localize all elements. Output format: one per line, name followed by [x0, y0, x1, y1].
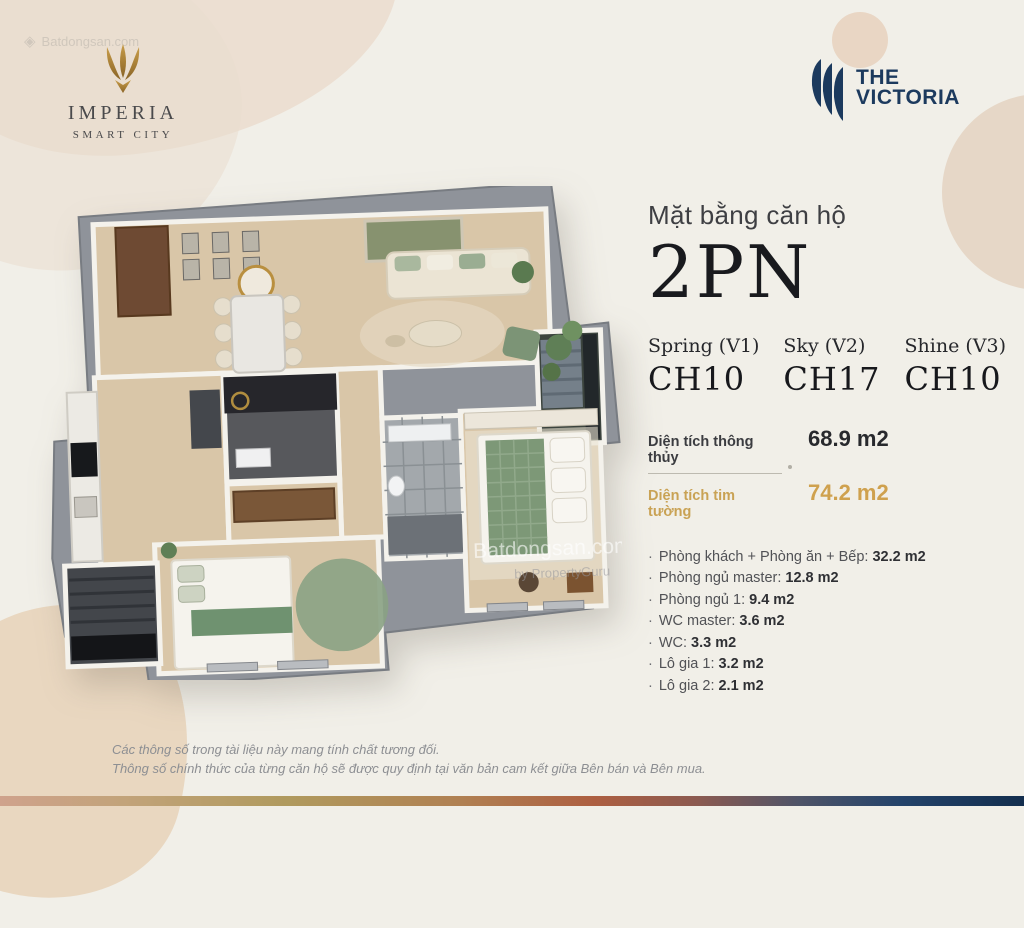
- area-summary: Diện tích thông thủy 68.9 m2 Diện tích t…: [648, 426, 1010, 527]
- divider-dot: [788, 465, 792, 469]
- batdongsan-diamond-icon: ◈: [24, 32, 36, 50]
- bullet-dot: ·: [648, 613, 653, 629]
- bullet-dot: ·: [648, 592, 653, 608]
- room-value: 3.2 m2: [718, 656, 763, 672]
- tower-unit-code: CH10: [648, 360, 759, 398]
- toilet: [388, 476, 405, 497]
- imperia-name: IMPERIA: [58, 102, 188, 125]
- picture-frame: [212, 232, 229, 253]
- imperia-logo: IMPERIA SMART CITY: [58, 44, 188, 141]
- bottom-gradient-bar: [0, 796, 1024, 806]
- dining-table: [231, 295, 286, 373]
- stove: [70, 442, 97, 477]
- room-value: 9.4 m2: [749, 592, 794, 608]
- room-label: Lô gia 1:: [659, 656, 715, 672]
- dining-chair: [215, 350, 234, 369]
- picture-frame: [242, 231, 259, 252]
- sofa-pillow: [491, 252, 518, 268]
- console-cabinet: [233, 488, 335, 522]
- panel-subtitle: Mặt bằng căn hộ: [648, 200, 1010, 231]
- wc1-vanity: [236, 448, 271, 467]
- pillow: [551, 467, 586, 492]
- room-label: WC master:: [659, 613, 736, 629]
- list-item: ·Lô gia 1:3.2 m2: [648, 654, 1010, 676]
- window: [207, 662, 258, 672]
- list-item: ·WC master:3.6 m2: [648, 611, 1010, 633]
- tower-sky: Sky (V2) CH17: [783, 335, 880, 398]
- tower-unit-code: CH10: [905, 360, 1007, 398]
- imperia-tulip-icon: [101, 44, 145, 94]
- unit-type-title: 2PN: [648, 235, 1010, 311]
- victoria-name: THE VICTORIA: [856, 68, 960, 108]
- picture-frame: [213, 258, 230, 279]
- room-value: 3.6 m2: [739, 613, 784, 629]
- room-value: 12.8 m2: [785, 570, 838, 586]
- dining-chair: [282, 295, 301, 314]
- room-value: 32.2 m2: [872, 549, 925, 565]
- sink: [74, 497, 97, 518]
- tall-cabinet: [189, 389, 221, 448]
- striped-pillow: [177, 565, 204, 582]
- wc-master-vanity: [388, 424, 451, 442]
- tower-spring: Spring (V1) CH10: [648, 335, 759, 398]
- pillow: [550, 437, 585, 462]
- imperia-subtitle: SMART CITY: [58, 129, 188, 141]
- pillow: [552, 498, 587, 523]
- area-label: Diện tích thông thủy: [648, 434, 782, 474]
- balcony-glass: [71, 634, 156, 661]
- window: [278, 660, 329, 670]
- sofa-pillow: [427, 254, 454, 270]
- bullet-dot: ·: [648, 549, 653, 565]
- bullet-dot: ·: [648, 635, 653, 651]
- sofa-pillow: [394, 256, 421, 272]
- area-row-gross: Diện tích tim tường 74.2 m2: [648, 480, 1010, 527]
- striped-pillow: [178, 585, 205, 602]
- area-value: 68.9 m2: [808, 426, 889, 452]
- disclaimer-line1: Các thông số trong tài liệu này mang tín…: [112, 741, 706, 760]
- floor-plan-3d: Batdongsan.com by PropertyGuru: [38, 186, 622, 680]
- list-item: ·Lô gia 2:2.1 m2: [648, 676, 1010, 698]
- room-value: 2.1 m2: [718, 678, 763, 694]
- dining-chair: [213, 297, 232, 316]
- room-label: Phòng khách + Phòng ăn + Bếp:: [659, 549, 869, 565]
- room-label: Lô gia 2:: [659, 678, 715, 694]
- tower-name: Shine (V3): [905, 335, 1007, 357]
- room-label: Phòng ngủ master:: [659, 570, 782, 586]
- list-item: ·Phòng ngủ master:12.8 m2: [648, 568, 1010, 590]
- bullet-dot: ·: [648, 678, 653, 694]
- green-bed-runner: [191, 607, 293, 637]
- window: [487, 602, 528, 611]
- area-row-net: Diện tích thông thủy 68.9 m2: [648, 426, 1010, 474]
- room-area-list: ·Phòng khách + Phòng ăn + Bếp:32.2 m2 ·P…: [648, 547, 1010, 698]
- victoria-line2: VICTORIA: [856, 88, 960, 108]
- area-label: Diện tích tim tường: [648, 488, 782, 527]
- tower-name: Sky (V2): [783, 335, 880, 357]
- window: [543, 600, 584, 609]
- tower-unit-code: CH17: [783, 360, 880, 398]
- entry-door: [115, 226, 170, 316]
- shower-floor: [387, 514, 463, 555]
- dining-chair: [283, 321, 302, 340]
- tower-units: Spring (V1) CH10 Sky (V2) CH17 Shine (V3…: [648, 335, 1010, 398]
- picture-frame: [183, 259, 200, 280]
- dining-chair: [214, 324, 233, 343]
- tower-shine: Shine (V3) CH10: [905, 335, 1007, 398]
- victoria-line1: THE: [856, 68, 960, 88]
- room-label: WC:: [659, 635, 687, 651]
- area-value: 74.2 m2: [808, 480, 889, 506]
- victoria-logo: THE VICTORIA: [810, 55, 960, 121]
- room-value: 3.3 m2: [691, 635, 736, 651]
- list-item: ·WC:3.3 m2: [648, 633, 1010, 655]
- bullet-dot: ·: [648, 570, 653, 586]
- sofa-pillow: [459, 253, 486, 269]
- dining-chair: [284, 347, 303, 366]
- bullet-dot: ·: [648, 656, 653, 672]
- disclaimer-text: Các thông số trong tài liệu này mang tín…: [112, 741, 706, 779]
- list-item: ·Phòng ngủ 1:9.4 m2: [648, 590, 1010, 612]
- disclaimer-line2: Thông số chính thức của từng căn hộ sẽ đ…: [112, 760, 706, 779]
- picture-frame: [182, 233, 199, 254]
- victoria-bars-icon: [810, 55, 846, 121]
- tower-name: Spring (V1): [648, 335, 759, 357]
- list-item: ·Phòng khách + Phòng ăn + Bếp:32.2 m2: [648, 547, 1010, 569]
- unit-info-panel: Mặt bằng căn hộ 2PN Spring (V1) CH10 Sky…: [648, 200, 1010, 713]
- room-label: Phòng ngủ 1:: [659, 592, 745, 608]
